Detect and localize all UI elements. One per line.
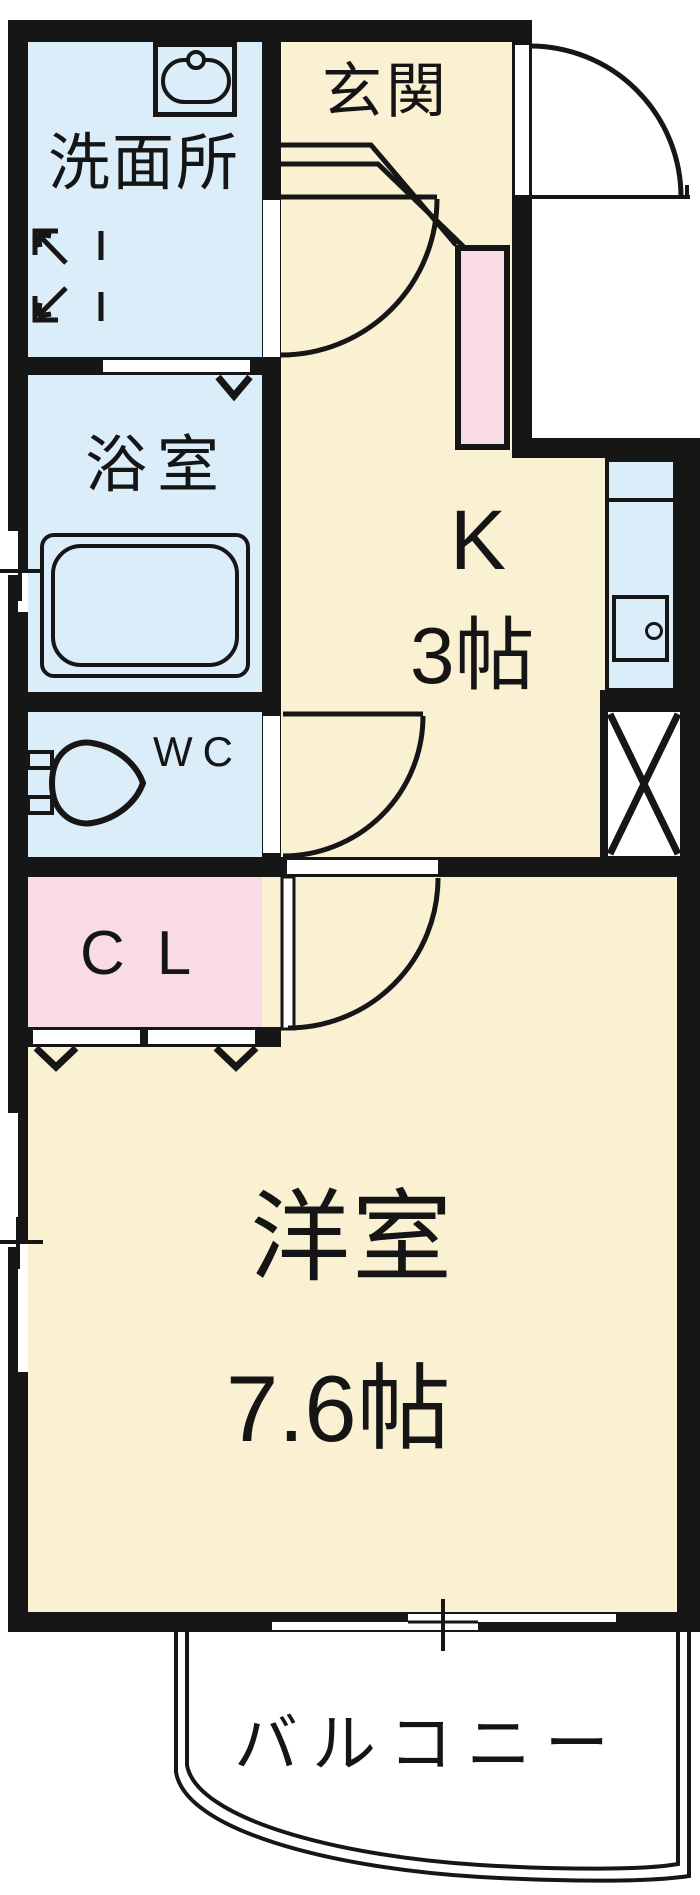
- balcony-door-strip-upper: [408, 1614, 616, 1622]
- wall-notch-bottom: [532, 438, 700, 458]
- balcony-door-strip-lower: [272, 1622, 478, 1630]
- label-washroom: 洗面所: [48, 133, 240, 195]
- exterior-notch: [532, 0, 700, 438]
- shoe-cabinet: [455, 245, 510, 450]
- wall-left: [8, 20, 28, 1632]
- wc-door-gap: [263, 716, 280, 853]
- wall-right: [677, 438, 700, 1632]
- western-window-strip-inner: [18, 1243, 28, 1372]
- bathroom-door-gap: [103, 360, 250, 372]
- wall-bathroom-wc: [8, 692, 281, 712]
- kitchen-counter-divider: [605, 498, 677, 502]
- label-western-room: 洋室: [250, 1188, 454, 1288]
- label-wc: WC: [153, 731, 243, 773]
- kitchen-western-door-gap: [287, 860, 438, 874]
- wall-top: [8, 20, 532, 42]
- floor-plan: 玄関 洗面所 浴室 WC CL K 3帖 洋室 7.6帖 バルコニー: [0, 0, 700, 1895]
- label-bathroom: 浴室: [85, 435, 229, 497]
- entrance-door-leaf: [512, 42, 532, 198]
- dead-space-white: [608, 712, 680, 856]
- bathtub-inner: [51, 544, 239, 667]
- label-closet: CL: [80, 923, 223, 985]
- label-entrance: 玄関: [322, 62, 450, 122]
- bathroom-window-strip-inner: [18, 571, 28, 612]
- label-balcony: バルコニー: [234, 1712, 623, 1776]
- label-kitchen-size: 3帖: [410, 616, 535, 696]
- washbasin-faucet: [186, 50, 206, 70]
- label-kitchen: K: [450, 498, 506, 582]
- closet-door-panel-right: [148, 1030, 255, 1044]
- closet-door-panel-left: [33, 1030, 140, 1044]
- label-western-room-size: 7.6帖: [226, 1362, 451, 1456]
- kitchen-sink-faucet: [645, 622, 663, 640]
- washroom-door-gap: [263, 200, 280, 357]
- western-window-strip-outer: [8, 1113, 18, 1247]
- bathroom-window-strip-outer: [8, 531, 18, 575]
